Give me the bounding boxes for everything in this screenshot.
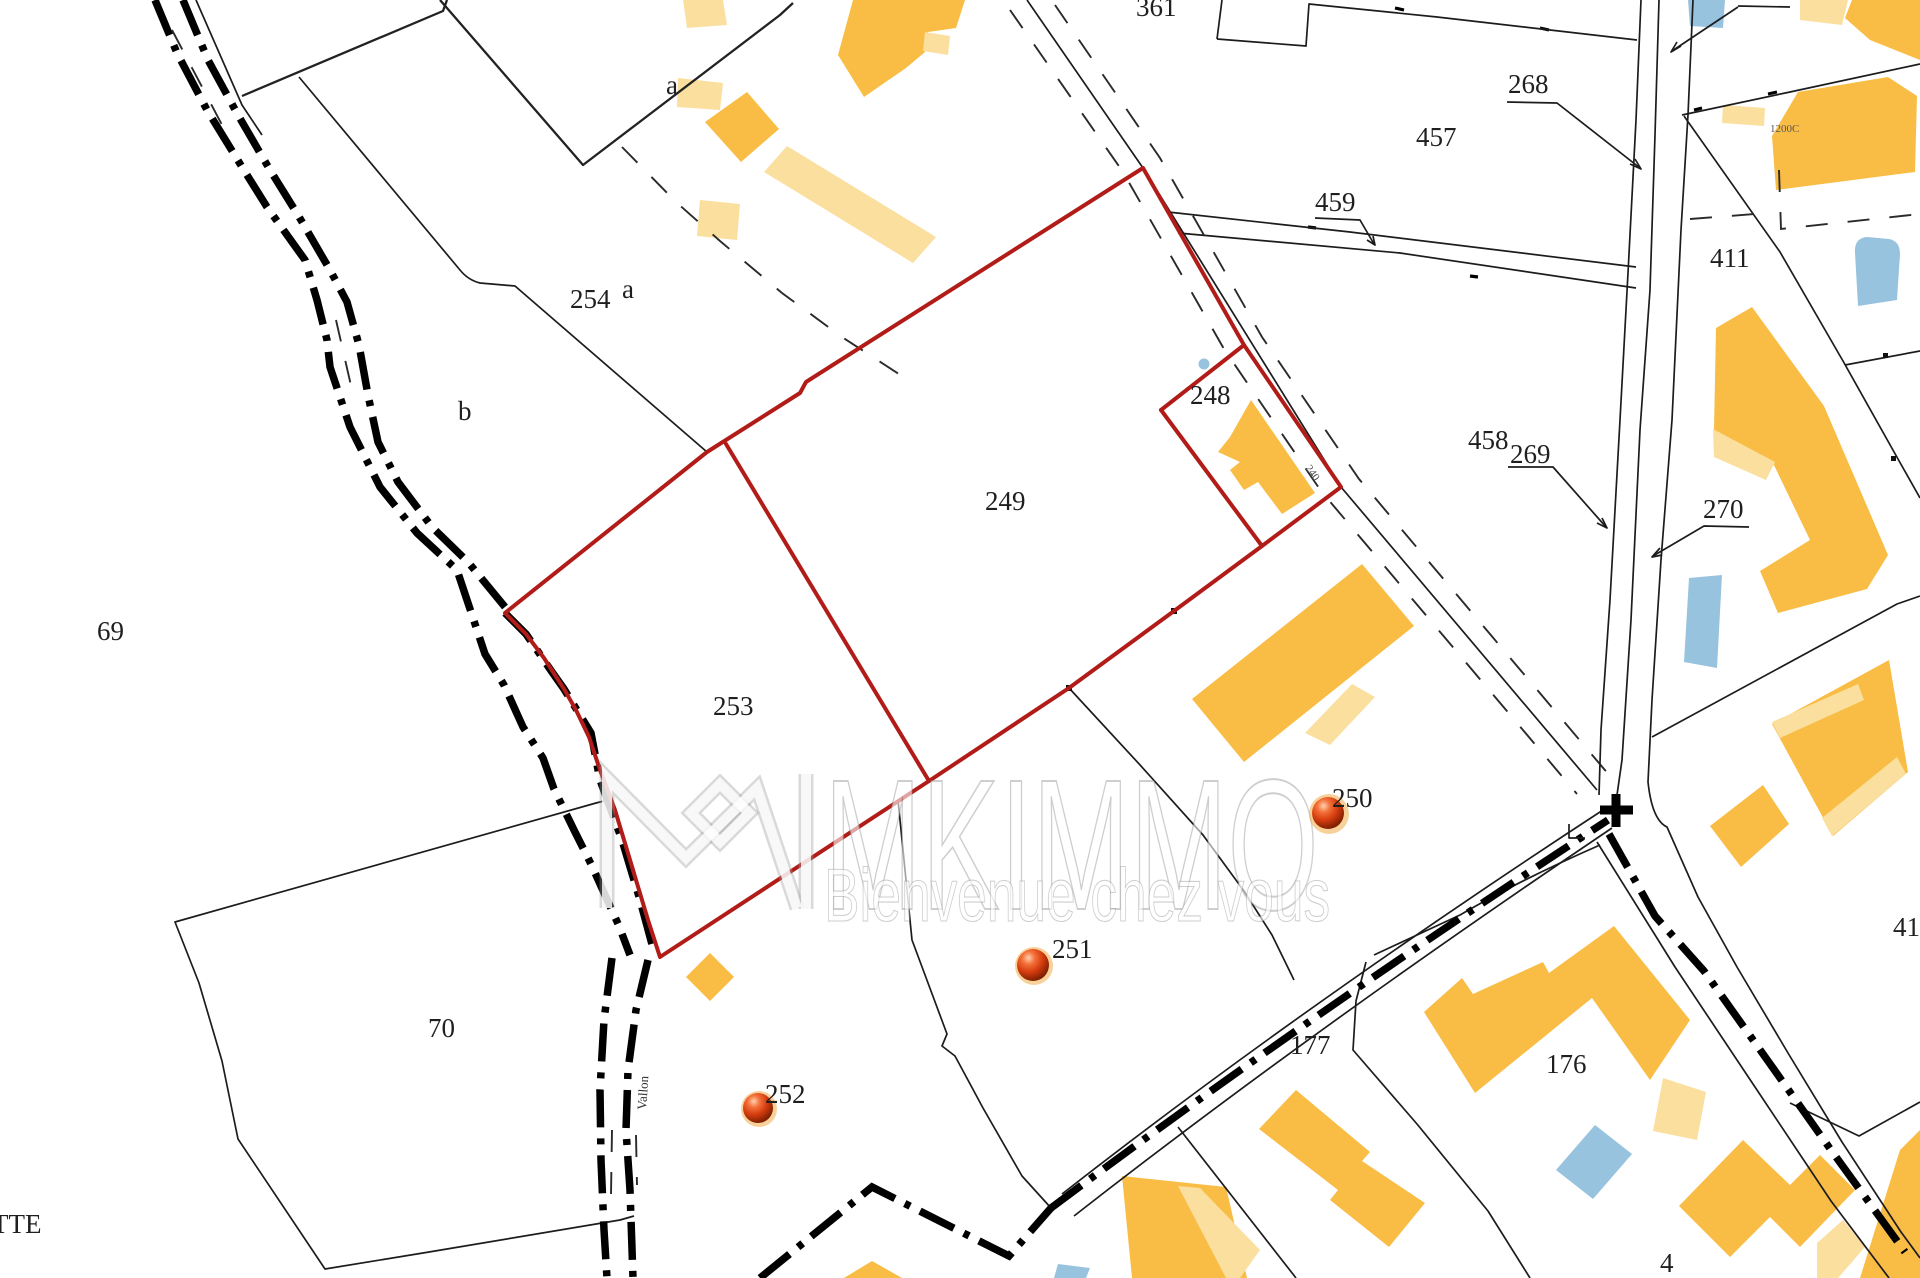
svg-text:361: 361 — [1136, 0, 1177, 22]
svg-text:411: 411 — [1710, 243, 1750, 273]
svg-text:268: 268 — [1508, 69, 1549, 99]
svg-text:176: 176 — [1546, 1049, 1587, 1079]
svg-text:251: 251 — [1052, 934, 1093, 964]
svg-text:1200C: 1200C — [1770, 123, 1799, 135]
svg-text:416: 416 — [1893, 912, 1920, 942]
svg-text:457: 457 — [1416, 122, 1457, 152]
svg-text:459: 459 — [1315, 187, 1356, 217]
svg-text:458: 458 — [1468, 425, 1509, 455]
svg-text:269: 269 — [1510, 439, 1551, 469]
svg-text:b: b — [458, 396, 472, 426]
svg-text:a: a — [666, 70, 678, 100]
svg-text:Bienvenue chez vous: Bienvenue chez vous — [824, 853, 1330, 937]
svg-text:4: 4 — [1660, 1248, 1674, 1278]
svg-text:a: a — [622, 274, 634, 304]
svg-text:270: 270 — [1703, 494, 1744, 524]
svg-text:250: 250 — [1332, 783, 1373, 813]
svg-text:254: 254 — [570, 284, 611, 314]
svg-text:177: 177 — [1290, 1030, 1331, 1060]
svg-text:252: 252 — [765, 1079, 806, 1109]
svg-text:TTE: TTE — [0, 1209, 41, 1239]
svg-text:70: 70 — [428, 1013, 455, 1043]
svg-text:253: 253 — [713, 691, 754, 721]
svg-text:Vallon: Vallon — [634, 1075, 651, 1110]
svg-text:69: 69 — [97, 616, 124, 646]
svg-text:249: 249 — [985, 486, 1026, 516]
svg-text:248: 248 — [1190, 380, 1231, 410]
